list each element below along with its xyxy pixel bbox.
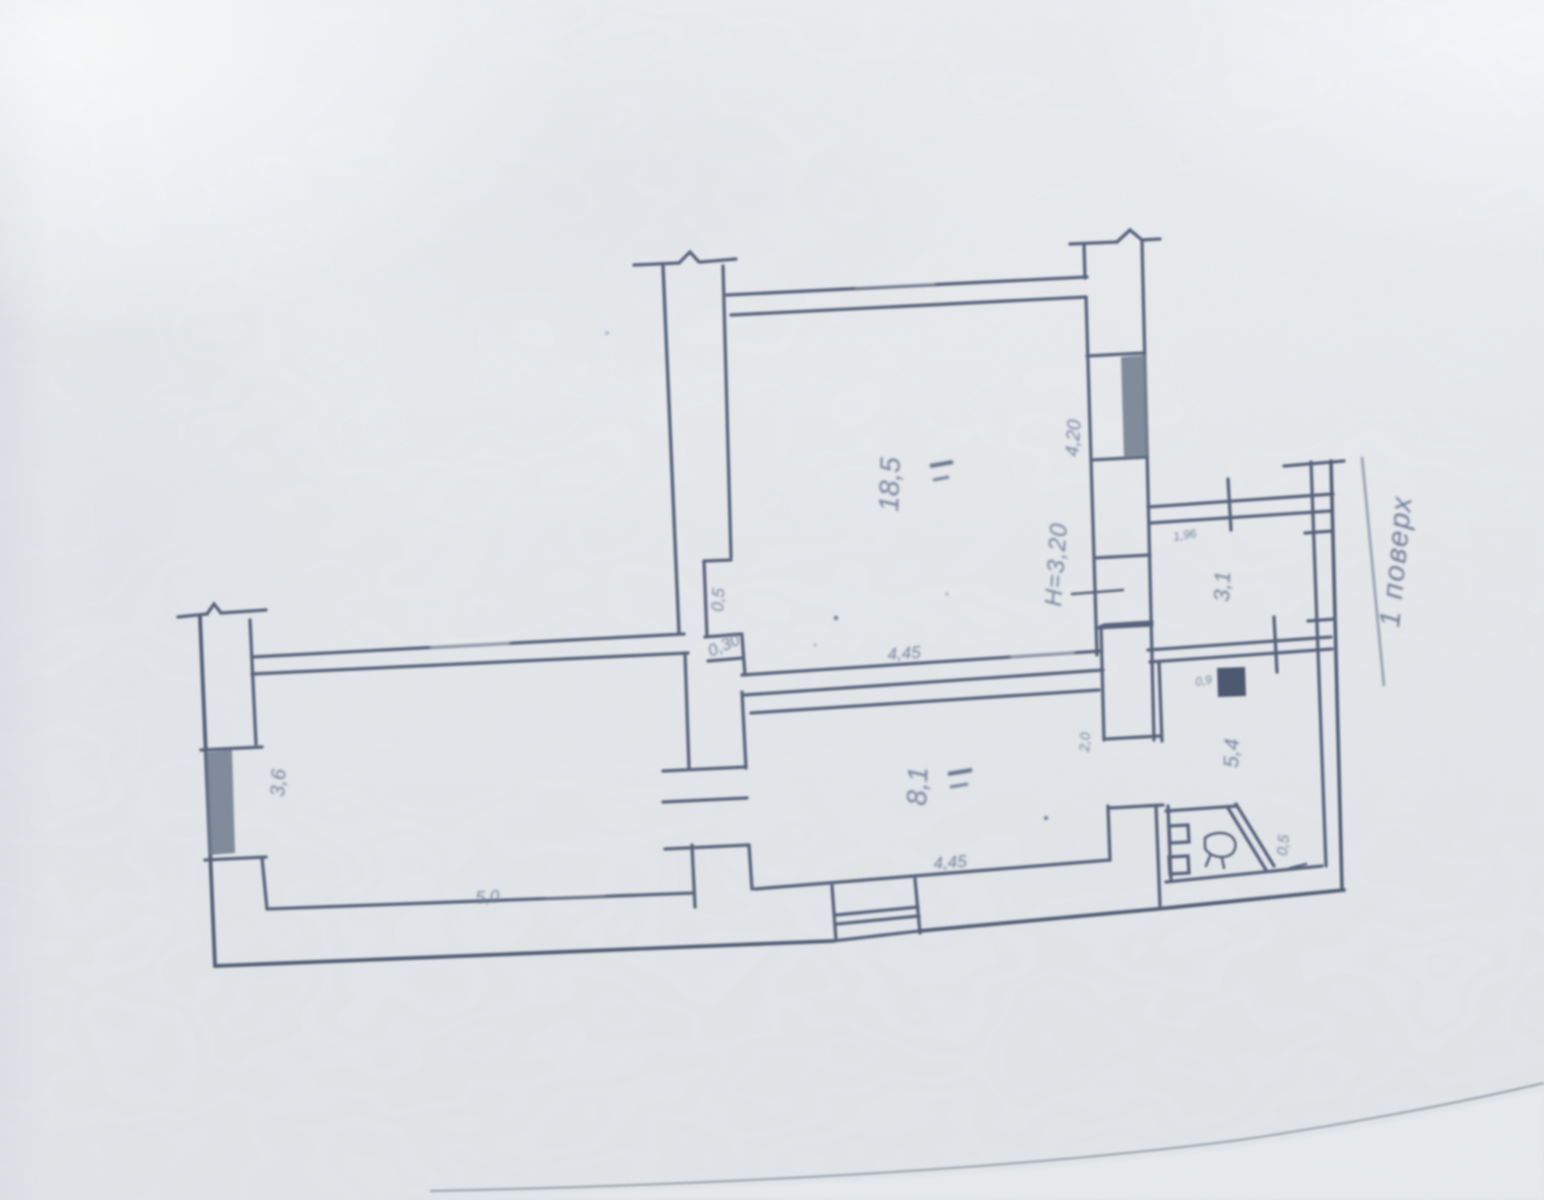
svg-text:4,45: 4,45	[887, 643, 922, 664]
svg-text:5,4: 5,4	[1220, 738, 1244, 768]
svg-text:4,20: 4,20	[1062, 419, 1086, 458]
svg-text:8,1: 8,1	[901, 766, 933, 806]
svg-text:3,6: 3,6	[267, 767, 290, 797]
svg-text:0,5: 0,5	[708, 587, 728, 612]
svg-text:4,45: 4,45	[933, 852, 968, 873]
svg-text:5,0: 5,0	[475, 887, 500, 907]
svg-text:18,5: 18,5	[873, 456, 906, 512]
svg-text:0,5: 0,5	[1274, 833, 1293, 856]
svg-text:2,0: 2,0	[1076, 732, 1093, 753]
svg-text:3,1: 3,1	[1209, 571, 1235, 602]
svg-text:0,9: 0,9	[1194, 672, 1213, 689]
